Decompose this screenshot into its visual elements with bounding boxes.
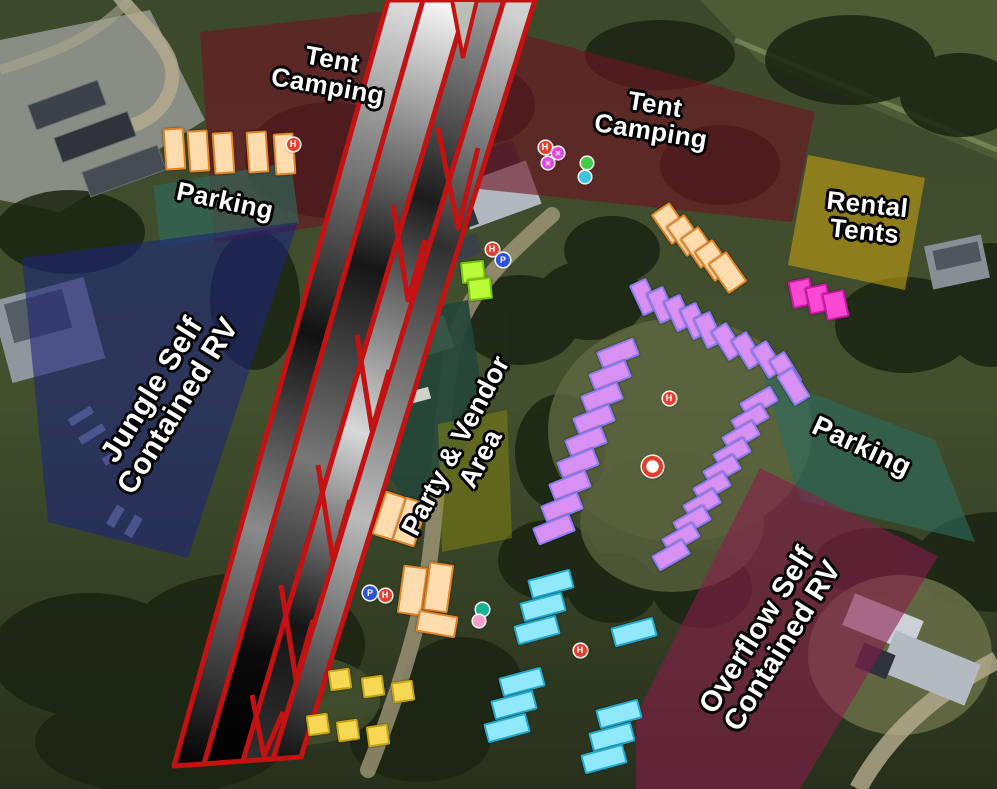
label-tent-camping-nw: TentCamping <box>269 36 391 109</box>
campground-map: HHHHHHPP✕✕ TentCampingParkingJungle Self… <box>0 0 997 789</box>
label-rental-tents: RentalTents <box>822 187 909 249</box>
zone-labels: TentCampingParkingJungle SelfContained R… <box>0 0 997 789</box>
label-jungle-self-contained-rv: Jungle SelfContained RV <box>85 296 244 499</box>
label-overflow-self-contained-rv: Overflow SelfContained RV <box>693 540 847 737</box>
label-tent-camping-ne: TentCamping <box>592 82 713 153</box>
label-parking-e: Parking <box>808 411 916 482</box>
label-party-vendor-area: Party & VendorArea <box>396 351 539 553</box>
label-parking-nw: Parking <box>174 178 276 225</box>
